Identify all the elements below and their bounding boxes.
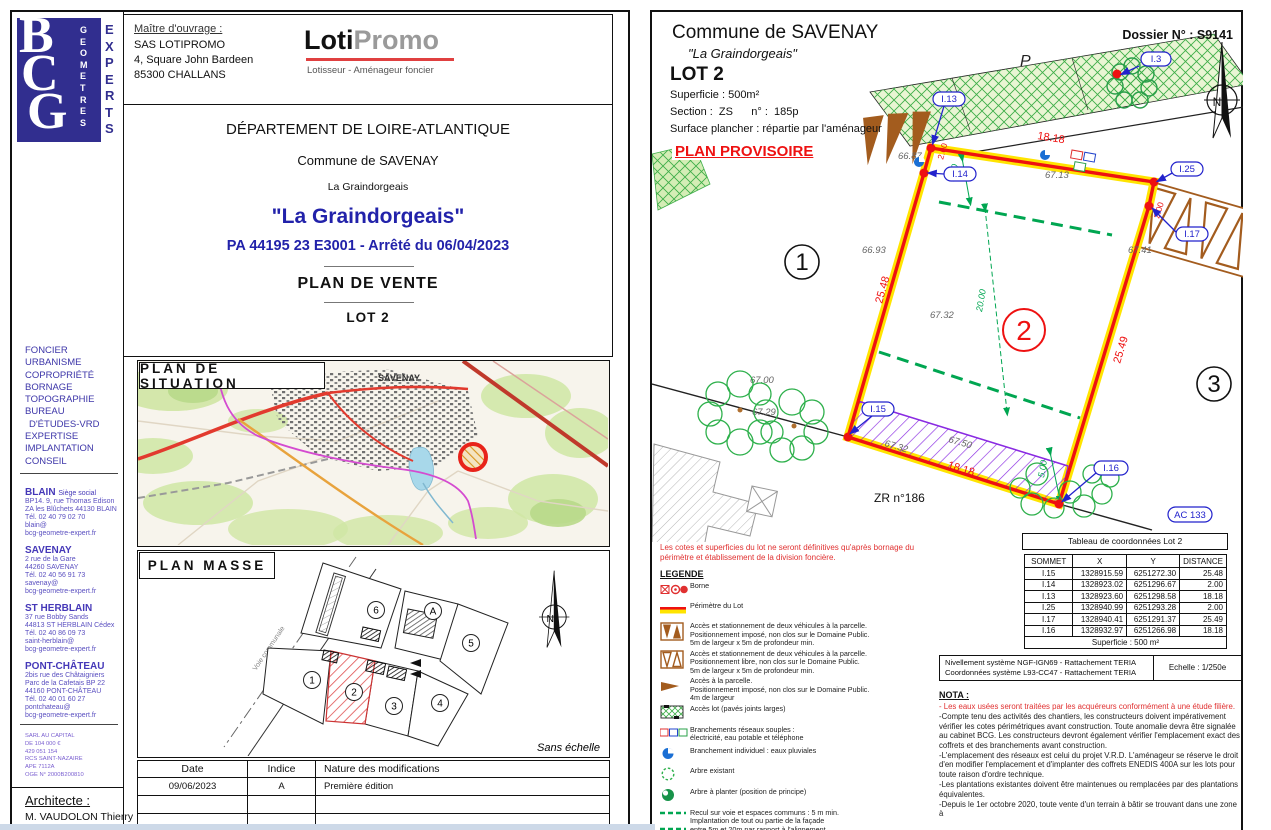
plan-section: Section : ZS n° : 185p	[670, 106, 799, 118]
access-parcel-icon	[660, 677, 690, 700]
legend-text: Accès lot (pavés joints larges)	[690, 705, 785, 714]
legend-text: entre 5m et 20m par rapport à l'aligneme…	[690, 826, 839, 830]
quoted-title: "La Graindorgeais"	[124, 205, 612, 229]
coords-header: SOMMET	[1025, 555, 1073, 568]
plan-superficie: Superficie : 500m²	[670, 89, 759, 101]
masse-lot-a: A	[430, 607, 437, 618]
legend-item-eaux-pluviales: Branchement individuel : eaux pluviales	[660, 747, 938, 765]
office-city: BLAIN	[25, 487, 56, 498]
offices: BLAIN Siège social BP14. 9, rue Thomas E…	[25, 480, 123, 720]
masse-lot-1: 1	[309, 676, 315, 687]
dim-top: 18.18	[1037, 130, 1066, 146]
masse-lot-2: 2	[351, 688, 357, 699]
owner-box: Maître d'ouvrage : SAS LOTIPROMO 4, Squa…	[123, 14, 613, 105]
rule-1	[324, 266, 414, 267]
office-line: pontchateau@	[25, 704, 123, 712]
service-item: COPROPRIÉTÉ	[25, 370, 99, 382]
coords-cell: 1328923.60	[1073, 591, 1127, 603]
level: 67.29	[752, 407, 776, 418]
coords-table: SOMMET X Y DISTANCE I.151328915.59625127…	[1024, 554, 1227, 649]
masse-lot-5: 5	[468, 639, 474, 650]
brand-tagline: Lotisseur - Aménageur foncier	[307, 65, 434, 76]
brand-part-1: Loti	[304, 25, 353, 55]
legend-text: Périmètre du Lot	[690, 602, 743, 611]
access-imposed-icon	[660, 622, 690, 647]
lot-number-2: 2	[1016, 315, 1032, 346]
coords-cell: 1328923.02	[1073, 579, 1127, 591]
level: 67.41	[1128, 245, 1152, 256]
coords-cell: 25.49	[1180, 614, 1227, 626]
dossier-number: Dossier N° : S9141	[1122, 28, 1233, 42]
coords-header: Y	[1127, 555, 1180, 568]
georef-box: Nivellement système NGF-IGN69 - Rattache…	[939, 655, 1154, 681]
service-item: URBANISME	[25, 357, 99, 369]
legend-item-branchements: Branchements réseaux souples : électrici…	[660, 726, 938, 745]
lotipromo-logo: LotiPromo	[304, 25, 439, 56]
left-sheet: B C G GEOMETRES EXPERTS FONCIER URBANISM…	[10, 10, 630, 830]
modifications-table: Date Indice Nature des modifications 09/…	[137, 760, 610, 830]
coords-header: DISTANCE	[1180, 555, 1227, 568]
existing-building	[652, 444, 758, 542]
masse-scale-note: Sans échelle	[537, 742, 600, 754]
coords-cell: 6251296.67	[1127, 579, 1180, 591]
coords-cell: I.25	[1025, 602, 1073, 614]
site-marker	[460, 444, 486, 470]
office-line: ZA les Blûchets 44130 BLAIN	[25, 506, 123, 514]
coords-cell: 6251291.37	[1127, 614, 1180, 626]
coords-cell: 6251266.98	[1127, 625, 1180, 637]
level: 66.93	[862, 245, 886, 256]
office-line: bcg-geometre-expert.fr	[25, 712, 123, 720]
masse-north-letter: N	[546, 614, 554, 625]
legal-line: OGE N° 2000B200810	[25, 772, 84, 780]
window-edge	[0, 824, 655, 830]
service-item: BORNAGE	[25, 382, 99, 394]
sidebar-rule	[20, 473, 118, 474]
mods-indice: A	[248, 778, 316, 796]
service-item: D'ÉTUDES-VRD	[25, 419, 99, 431]
level: 67.13	[1045, 170, 1069, 181]
office-name: SAVENAY	[25, 545, 123, 556]
nota-line: -Les plantations existantes doivent être…	[939, 780, 1241, 799]
legal-line: APE 7112A	[25, 764, 84, 772]
coords-cell: 2.00	[1180, 602, 1227, 614]
lot-number-1: 1	[795, 249, 808, 276]
mods-header-indice: Indice	[248, 761, 316, 778]
office-tag: Siège social	[58, 490, 96, 497]
legal-block: SARL AU CAPITAL DE 104 000 € 429 051 154…	[25, 733, 84, 780]
marker-i17: I.17	[1184, 229, 1200, 240]
office-line: bcg-geometre-expert.fr	[25, 588, 123, 596]
coords-cell: 18.18	[1180, 591, 1227, 603]
nota-line: -L'emplacement des réseaux est celui du …	[939, 751, 1241, 779]
legend-text: Arbre à planter (position de principe)	[690, 788, 806, 797]
mods-empty-cell	[316, 796, 610, 814]
office-name: ST HERBLAIN	[25, 603, 123, 614]
bcg-geometres-text: GEOMETRES	[80, 25, 91, 129]
legal-line: RCS SAINT-NAZAIRE	[25, 756, 84, 764]
coords-cell: 2.00	[1180, 579, 1227, 591]
masse-box: Voie communale 1 2 3 4 5	[137, 550, 610, 758]
legal-line: SARL AU CAPITAL	[25, 733, 84, 741]
nota-line: -Compte tenu des activités des chantiers…	[939, 712, 1241, 750]
legend-item-arbre-planter: Arbre à planter (position de principe)	[660, 788, 938, 807]
marker-i14: I.14	[952, 169, 968, 180]
right-sheet: P	[650, 10, 1243, 830]
architect-label: Architecte :	[25, 793, 90, 808]
place-title: La Graindorgeais	[124, 181, 612, 193]
coords-header: X	[1073, 555, 1127, 568]
office-line: Tél. 02 40 56 91 73	[25, 572, 123, 580]
office-line: BP14. 9, rue Thomas Edison	[25, 498, 123, 506]
legend-title: LEGENDE	[660, 569, 704, 579]
coords-cell: 18.18	[1180, 625, 1227, 637]
title-block: DÉPARTEMENT DE LOIRE-ATLANTIQUE Commune …	[123, 105, 613, 357]
stormwater-legend-icon	[660, 747, 690, 765]
existing-tree-icon	[660, 767, 690, 786]
masse-north-arrow: N	[539, 571, 569, 648]
coords-cell: 6251293.28	[1127, 602, 1180, 614]
commune-title: Commune de SAVENAY	[124, 153, 612, 168]
planted-tree-icon	[660, 788, 690, 807]
utility-boxes-legend-icon	[660, 726, 690, 745]
coords-cell: I.14	[1025, 579, 1073, 591]
bcg-logo: B C G GEOMETRES EXPERTS	[17, 18, 121, 142]
coords-cell: 6251298.58	[1127, 591, 1180, 603]
office-line: 44160 PONT-CHÂTEAU	[25, 688, 123, 696]
map-city-label: SAVENAY	[378, 373, 420, 383]
service-item: CONSEIL	[25, 456, 99, 468]
office-line: blain@	[25, 522, 123, 530]
coords-cell: 1328940.99	[1073, 602, 1127, 614]
coords-cell: 1328940.41	[1073, 614, 1127, 626]
office-line: 44813 ST HERBLAIN Cédex	[25, 622, 123, 630]
mods-header-date: Date	[138, 761, 248, 778]
service-item: FONCIER	[25, 345, 99, 357]
legend-text: 5m de largeur x 5m de profondeur min.	[690, 639, 869, 648]
dim-right: 25.49	[1111, 335, 1131, 365]
legal-line: DE 104 000 €	[25, 741, 84, 749]
office-line: bcg-geometre-expert.fr	[25, 530, 123, 538]
masse-title: PLAN MASSE	[139, 552, 275, 579]
architect-name: M. VAUDOLON Thierry	[25, 811, 133, 823]
plan-provisoire-stamp: PLAN PROVISOIRE	[672, 143, 816, 160]
owner-line: SAS LOTIPROMO	[134, 39, 225, 51]
legend-item-acces-parcelle: Accès à la parcelle. Positionnement impo…	[660, 677, 938, 703]
georef-line: Nivellement système NGF-IGN69 - Rattache…	[945, 658, 1148, 668]
office-line: saint-herblain@	[25, 638, 123, 646]
marker-i3: I.3	[1151, 54, 1162, 65]
georef-line: Coordonnées système L93-CC47 - Rattachem…	[945, 668, 1148, 678]
coords-cell: I.13	[1025, 591, 1073, 603]
brand-part-2: Promo	[353, 25, 439, 55]
plan-commune: Commune de SAVENAY	[672, 22, 884, 44]
doc-type-title: PLAN DE VENTE	[124, 275, 612, 293]
legend-text: électricité, eau potable et téléphone	[690, 734, 803, 743]
marker-i25: I.25	[1179, 164, 1195, 175]
nota-line: -Depuis le 1er octobre 2020, toute vente…	[939, 800, 1241, 819]
disclaimer-note: Les cotes et superficies du lot ne seron…	[660, 543, 950, 562]
situation-title: PLAN DE SITUATION	[139, 362, 325, 389]
coords-title: Tableau de coordonnées Lot 2	[1022, 533, 1228, 550]
legend-text: 4m de largeur	[690, 694, 869, 703]
legend-text: 5m de largeur x 5m de profondeur min.	[690, 667, 867, 676]
masse-lot-6: 6	[373, 606, 379, 617]
office-line: bcg-geometre-expert.fr	[25, 646, 123, 654]
legal-line: 429 051 154	[25, 749, 84, 757]
architect-rule	[12, 787, 123, 788]
legend-item-borne: Borne	[660, 582, 938, 600]
owner-label: Maître d'ouvrage :	[134, 23, 222, 35]
legend-item-acces-lot: Accès lot (pavés joints larges)	[660, 705, 938, 724]
access-free-icon	[660, 650, 690, 675]
north-letter: N	[1213, 95, 1222, 109]
borne-icon	[660, 582, 690, 600]
marker-i16: I.16	[1103, 463, 1119, 474]
coords-cell: 1328932.97	[1073, 625, 1127, 637]
office-line: Tél. 02 40 01 60 27	[25, 696, 123, 704]
service-item: IMPLANTATION	[25, 443, 99, 455]
masse-lot-4: 4	[437, 699, 443, 710]
page: B C G GEOMETRES EXPERTS FONCIER URBANISM…	[0, 0, 1271, 830]
legend: Borne Périmètre du Lot Accès et stationn…	[660, 582, 938, 830]
nota-title: NOTA :	[939, 690, 1241, 700]
perimeter-icon	[660, 602, 690, 620]
coords-cell: 25.48	[1180, 568, 1227, 580]
sidebar-rule-2	[20, 724, 118, 725]
plan-lot: LOT 2	[670, 64, 724, 86]
scale-box: Echelle : 1/250e	[1153, 655, 1242, 681]
situation-map-box: SAVENAY PLAN DE SITUATION	[137, 360, 610, 547]
legend-item-arbre-existant: Arbre existant	[660, 767, 938, 786]
mods-empty-cell	[138, 796, 248, 814]
legend-item-perimetre: Périmètre du Lot	[660, 602, 938, 620]
coords-footer: Superficie : 500 m²	[1025, 637, 1227, 649]
marker-i15: I.15	[870, 404, 886, 415]
coords-cell: I.16	[1025, 625, 1073, 637]
office-name: BLAIN Siège social	[25, 487, 123, 498]
bcg-letter-g: G	[27, 82, 67, 141]
dept-title: DÉPARTEMENT DE LOIRE-ATLANTIQUE	[124, 121, 612, 138]
legend-text: Arbre existant	[690, 767, 734, 776]
office-line: Parc de la Cafetais BP 22	[25, 680, 123, 688]
zone-ref-label: ZR n°186	[874, 491, 925, 505]
service-item: TOPOGRAPHIE	[25, 394, 99, 406]
office-line: 37 rue Bobby Sands	[25, 614, 123, 622]
masse-lot-3: 3	[391, 702, 397, 713]
brand-underline	[306, 58, 454, 61]
mods-date: 09/06/2023	[138, 778, 248, 796]
parcel-ref-label: AC 133	[1174, 510, 1206, 521]
level: 67.32	[930, 310, 954, 321]
legend-item-recul: Recul sur voie et espaces communs : 5 m …	[660, 809, 938, 830]
plan-place: "La Graindorgeais"	[688, 46, 797, 61]
coords-cell: I.17	[1025, 614, 1073, 626]
legend-text: Branchement individuel : eaux pluviales	[690, 747, 816, 756]
coords-cell: 6251272.30	[1127, 568, 1180, 580]
paved-access-icon	[660, 705, 690, 724]
services-list: FONCIER URBANISME COPROPRIÉTÉ BORNAGE TO…	[25, 345, 99, 468]
office-line: Tél. 02 40 79 02 70	[25, 514, 123, 522]
coords-cell: 1328915.59	[1073, 568, 1127, 580]
office-line: 2 rue de la Gare	[25, 556, 123, 564]
office-line: 2bis rue des Châtaigniers	[25, 672, 123, 680]
pa-reference: PA 44195 23 E3001 - Arrêté du 06/04/2023	[124, 238, 612, 254]
office-line: 44260 SAVENAY	[25, 564, 123, 572]
coords-cell: I.15	[1025, 568, 1073, 580]
p-zone-label: P	[1020, 53, 1031, 70]
owner-line: 85300 CHALLANS	[134, 69, 226, 81]
owner-line: 4, Square John Bardeen	[134, 54, 253, 66]
bcg-experts-text: EXPERTS	[105, 22, 118, 138]
nota-block: NOTA : - Les eaux usées seront traitées …	[939, 690, 1241, 820]
office-line: Tél. 02 40 86 09 73	[25, 630, 123, 638]
service-item: BUREAU	[25, 406, 99, 418]
nota-line: - Les eaux usées seront traitées par les…	[939, 702, 1241, 711]
office-line: savenay@	[25, 580, 123, 588]
legend-text: Borne	[690, 582, 709, 591]
service-item: EXPERTISE	[25, 431, 99, 443]
rule-2	[324, 302, 414, 303]
mods-empty-cell	[248, 796, 316, 814]
mods-nature: Première édition	[316, 778, 610, 796]
masse-drawing: Voie communale 1 2 3 4 5	[138, 551, 608, 756]
legend-item-acces-impose: Accès et stationnement de deux véhicules…	[660, 622, 938, 648]
legend-item-acces-libre: Accès et stationnement de deux véhicules…	[660, 650, 938, 676]
mods-header-nature: Nature des modifications	[316, 761, 610, 778]
setback-icon	[660, 809, 690, 830]
plan-surface-plancher: Surface plancher : répartie par l'aménag…	[670, 123, 882, 135]
marker-i13: I.13	[941, 94, 957, 105]
office-name: PONT-CHÂTEAU	[25, 661, 123, 672]
lot-title: LOT 2	[124, 310, 612, 325]
lot-number-3: 3	[1207, 371, 1220, 398]
